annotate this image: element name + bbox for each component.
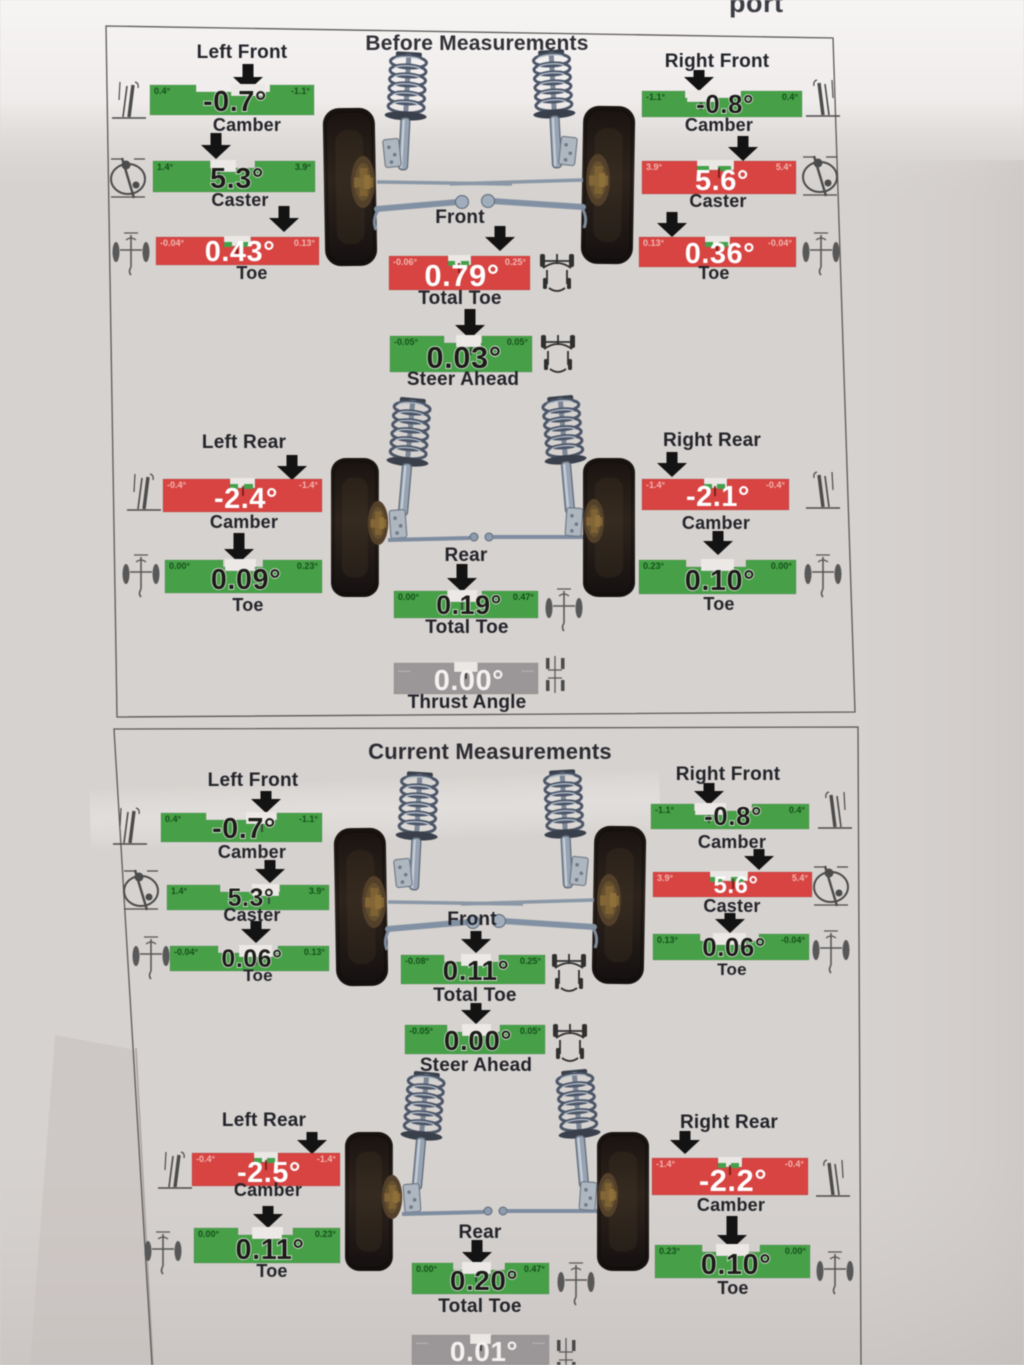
svg-text:-0.04°: -0.04° [160,238,185,248]
svg-text:.....: ..... [521,664,534,674]
svg-text:0.00°: 0.00° [198,1229,220,1239]
svg-text:0.05°: 0.05° [520,1026,542,1036]
svg-text:3.9°: 3.9° [657,873,674,883]
svg-text:0.00°: 0.00° [416,1264,438,1274]
svg-text:-1.4°: -1.4° [656,1159,676,1169]
svg-text:Left Rear: Left Rear [202,432,287,453]
svg-text:5.4°: 5.4° [792,873,809,883]
svg-text:-0.04°: -0.04° [768,238,793,248]
svg-text:-1.1°: -1.1° [291,86,311,96]
svg-text:1.4°: 1.4° [157,162,174,172]
svg-text:0.4°: 0.4° [782,92,799,102]
svg-text:-1.4°: -1.4° [299,480,319,490]
svg-text:Right Rear: Right Rear [663,430,761,451]
svg-text:Front: Front [447,909,497,930]
svg-text:Rear: Rear [458,1222,501,1243]
svg-text:0.00°: 0.00° [771,561,793,571]
svg-text:0.25°: 0.25° [520,956,542,966]
svg-text:0.20°: 0.20° [450,1265,518,1296]
svg-text:Rear: Rear [444,545,487,566]
svg-text:.....: ..... [416,1336,429,1346]
svg-text:0.47°: 0.47° [524,1264,546,1274]
svg-text:0.23°: 0.23° [659,1246,681,1256]
svg-text:0.19°: 0.19° [436,590,502,620]
svg-text:Caster: Caster [211,190,268,210]
svg-text:-0.06°: -0.06° [393,257,418,267]
svg-text:0.4°: 0.4° [165,814,182,824]
svg-text:Caster: Caster [689,191,746,211]
svg-text:Camber: Camber [697,1195,765,1215]
svg-text:Camber: Camber [234,1180,302,1200]
svg-text:Left Front: Left Front [197,42,288,63]
svg-text:Toe: Toe [717,960,747,979]
svg-text:.....: ..... [532,1336,545,1346]
svg-text:-1.1°: -1.1° [655,805,675,815]
svg-text:-2.4°: -2.4° [214,483,278,515]
svg-text:Total Toe: Total Toe [433,985,516,1006]
svg-text:Right Rear: Right Rear [680,1112,778,1133]
svg-text:0.10°: 0.10° [701,1249,772,1281]
svg-text:-0.8°: -0.8° [704,801,762,831]
svg-text:0.13°: 0.13° [294,238,316,248]
svg-text:1.4°: 1.4° [171,886,188,896]
svg-text:Camber: Camber [218,842,286,862]
svg-text:-0.4°: -0.4° [167,480,187,490]
svg-text:Toe: Toe [698,263,729,283]
svg-text:5.6°: 5.6° [714,872,759,899]
svg-text:0.23°: 0.23° [643,561,665,571]
svg-text:Camber: Camber [685,115,753,135]
svg-text:0.4°: 0.4° [789,805,806,815]
svg-text:0.13°: 0.13° [643,238,665,248]
svg-text:Camber: Camber [210,512,278,532]
svg-text:Total Toe: Total Toe [425,617,508,638]
svg-text:0.23°: 0.23° [315,1229,337,1239]
svg-text:0.11°: 0.11° [443,955,510,986]
svg-text:.....: ..... [398,664,411,674]
svg-text:0.00°: 0.00° [398,592,420,602]
svg-text:Camber: Camber [213,115,281,135]
svg-text:3.9°: 3.9° [309,886,326,896]
svg-text:Current Measurements: Current Measurements [368,739,612,764]
svg-text:0.00°: 0.00° [169,561,191,571]
svg-text:Left Rear: Left Rear [222,1110,307,1131]
svg-text:-0.7°: -0.7° [212,813,276,845]
svg-text:0.13°: 0.13° [304,947,326,957]
svg-text:-1.4°: -1.4° [317,1154,337,1164]
svg-text:Toe: Toe [236,263,267,283]
svg-text:-1.1°: -1.1° [646,92,666,102]
svg-text:3.9°: 3.9° [646,162,663,172]
svg-text:0.06°: 0.06° [702,932,766,962]
svg-text:Right Front: Right Front [676,764,781,785]
svg-text:Toe: Toe [232,595,263,615]
svg-text:-0.4°: -0.4° [196,1154,216,1164]
svg-text:-2.2°: -2.2° [699,1163,767,1198]
svg-text:port: port [729,0,783,18]
svg-text:0.10°: 0.10° [685,565,756,597]
svg-text:Front: Front [435,207,485,228]
svg-text:-0.04°: -0.04° [781,935,806,945]
svg-text:Total Toe: Total Toe [418,288,501,309]
svg-text:-0.08°: -0.08° [405,956,430,966]
svg-text:-0.7°: -0.7° [203,86,267,118]
svg-text:0.01°: 0.01° [450,1336,518,1365]
svg-text:-2.1°: -2.1° [686,481,750,513]
svg-text:-0.05°: -0.05° [394,337,419,347]
svg-text:0.00°: 0.00° [785,1246,807,1256]
svg-text:-0.4°: -0.4° [785,1159,805,1169]
svg-text:Thrust Angle: Thrust Angle [408,692,527,713]
svg-text:0.05°: 0.05° [507,337,529,347]
svg-text:-0.05°: -0.05° [409,1026,434,1036]
svg-text:Camber: Camber [682,513,750,533]
svg-text:-0.4°: -0.4° [766,480,786,490]
svg-text:0.23°: 0.23° [297,561,319,571]
svg-text:Toe: Toe [717,1278,748,1298]
svg-text:Total Toe: Total Toe [438,1296,521,1317]
svg-text:0.47°: 0.47° [513,592,535,602]
svg-text:3.9°: 3.9° [295,162,312,172]
svg-text:Left Front: Left Front [208,770,299,791]
svg-text:Steer Ahead: Steer Ahead [407,369,519,390]
svg-text:Toe: Toe [703,594,734,614]
svg-text:Right Front: Right Front [665,51,770,72]
svg-text:-1.4°: -1.4° [646,480,666,490]
svg-text:0.09°: 0.09° [211,564,282,596]
svg-text:0.4°: 0.4° [154,86,171,96]
svg-text:Toe: Toe [243,966,273,985]
svg-text:0.13°: 0.13° [657,935,679,945]
svg-text:-0.04°: -0.04° [174,947,199,957]
svg-text:0.00°: 0.00° [444,1025,512,1056]
svg-text:Toe: Toe [256,1261,287,1281]
svg-text:5.4°: 5.4° [776,162,793,172]
svg-text:0.25°: 0.25° [505,257,527,267]
svg-text:-1.1°: -1.1° [299,814,319,824]
